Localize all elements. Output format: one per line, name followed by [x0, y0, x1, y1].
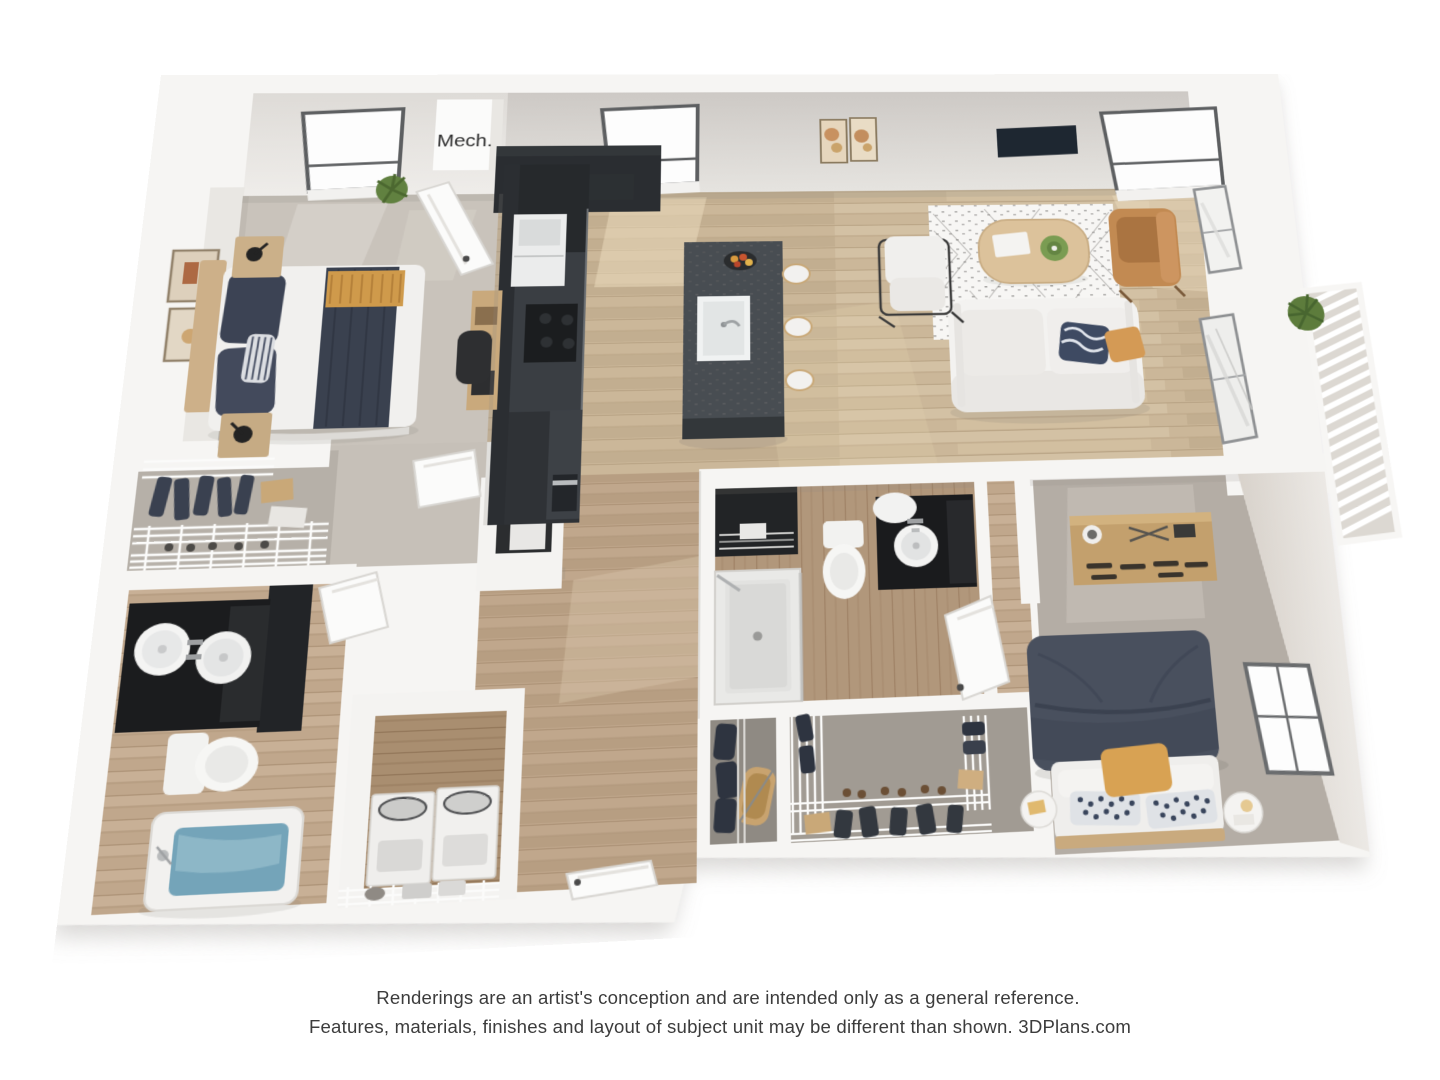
svg-text:Mech.: Mech. [436, 131, 493, 151]
